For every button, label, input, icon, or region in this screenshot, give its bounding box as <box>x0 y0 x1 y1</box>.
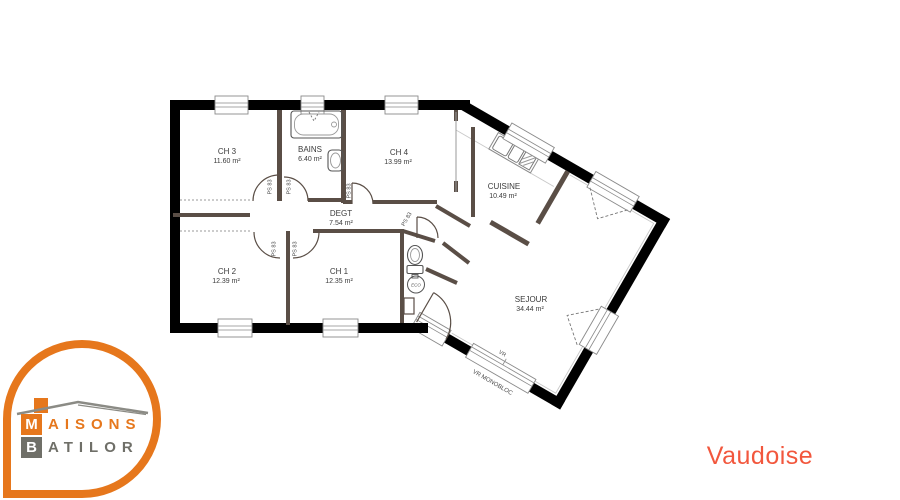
water-heater-icon: ECO <box>408 276 425 293</box>
ps83-label: PS 83 <box>272 242 278 257</box>
window-top-3 <box>385 96 418 114</box>
room-area: 12.39 m² <box>212 278 240 285</box>
room-area: 13.99 m² <box>384 159 412 166</box>
ps83-label: PS 83 <box>287 180 293 195</box>
logo-inner: M AISONS B ATILOR <box>3 340 161 498</box>
room-label-ch1: CH 1 12.35 m² <box>325 267 353 285</box>
room-label-ch3: CH 3 11.60 m² <box>213 147 241 165</box>
room-area: 34.44 m² <box>516 306 544 313</box>
room-label-bains: BAINS 6.40 m² <box>298 145 323 163</box>
room-name: CH 3 <box>218 147 237 156</box>
logo-b-square: B <box>21 437 42 458</box>
rotated-wing: VR VR MONOBLOC <box>347 97 676 424</box>
window-bottom-2 <box>323 319 358 337</box>
room-label-ch4: CH 4 13.99 m² <box>384 148 412 166</box>
room-name: DEGT <box>330 209 352 218</box>
toilet-icon <box>407 246 423 279</box>
interior-walls <box>173 110 475 325</box>
room-area: 10.49 m² <box>489 193 517 200</box>
ps83-label: PS 83 <box>401 212 414 228</box>
door-ch4 <box>352 183 373 204</box>
room-name: CH 4 <box>390 148 409 157</box>
window-bottom-1 <box>218 319 252 337</box>
logo-line-batilor: B ATILOR <box>21 437 139 458</box>
room-name: BAINS <box>298 145 322 154</box>
logo-maisons-text: AISONS <box>42 416 142 433</box>
ps83-label: PS 83 <box>347 184 353 199</box>
room-area: 6.40 m² <box>298 156 322 163</box>
room-area: 12.35 m² <box>325 278 353 285</box>
room-label-degt: DEGT 7.54 m² <box>329 209 353 227</box>
room-name: SEJOUR <box>515 295 548 304</box>
sejour-side-window <box>557 294 619 356</box>
logo-line-maisons: M AISONS <box>21 414 142 435</box>
room-name: CH 2 <box>218 267 237 276</box>
wc-cabinet <box>404 298 414 314</box>
hall-walls <box>403 206 470 283</box>
window-top-1 <box>215 96 248 114</box>
logo-m-square: M <box>21 414 42 435</box>
ps83-label: PS 83 <box>293 242 299 257</box>
room-area: 7.54 m² <box>329 220 353 227</box>
room-label-ch2: CH 2 12.39 m² <box>212 267 240 285</box>
plan-name: Vaudoise <box>660 442 860 471</box>
room-label-sejour: SEJOUR 34.44 m² <box>515 295 548 313</box>
logo-batilor-text: ATILOR <box>42 439 139 456</box>
room-area: 11.60 m² <box>213 158 241 165</box>
batilor-logo: M AISONS B ATILOR <box>3 340 161 498</box>
door-ch3 <box>253 175 279 201</box>
room-label-cuisine: CUISINE 10.49 m² <box>488 182 520 200</box>
eco-label: ECO <box>411 283 421 288</box>
bathtub-icon <box>291 111 342 138</box>
floor-plan-page: VR VR MONOBLOC <box>0 0 900 500</box>
room-name: CUISINE <box>488 182 520 191</box>
vr-label: VR <box>497 350 507 359</box>
ps83-label: PS 83 <box>268 180 274 195</box>
bathroom-sink-icon <box>328 150 343 171</box>
room-name: CH 1 <box>330 267 349 276</box>
